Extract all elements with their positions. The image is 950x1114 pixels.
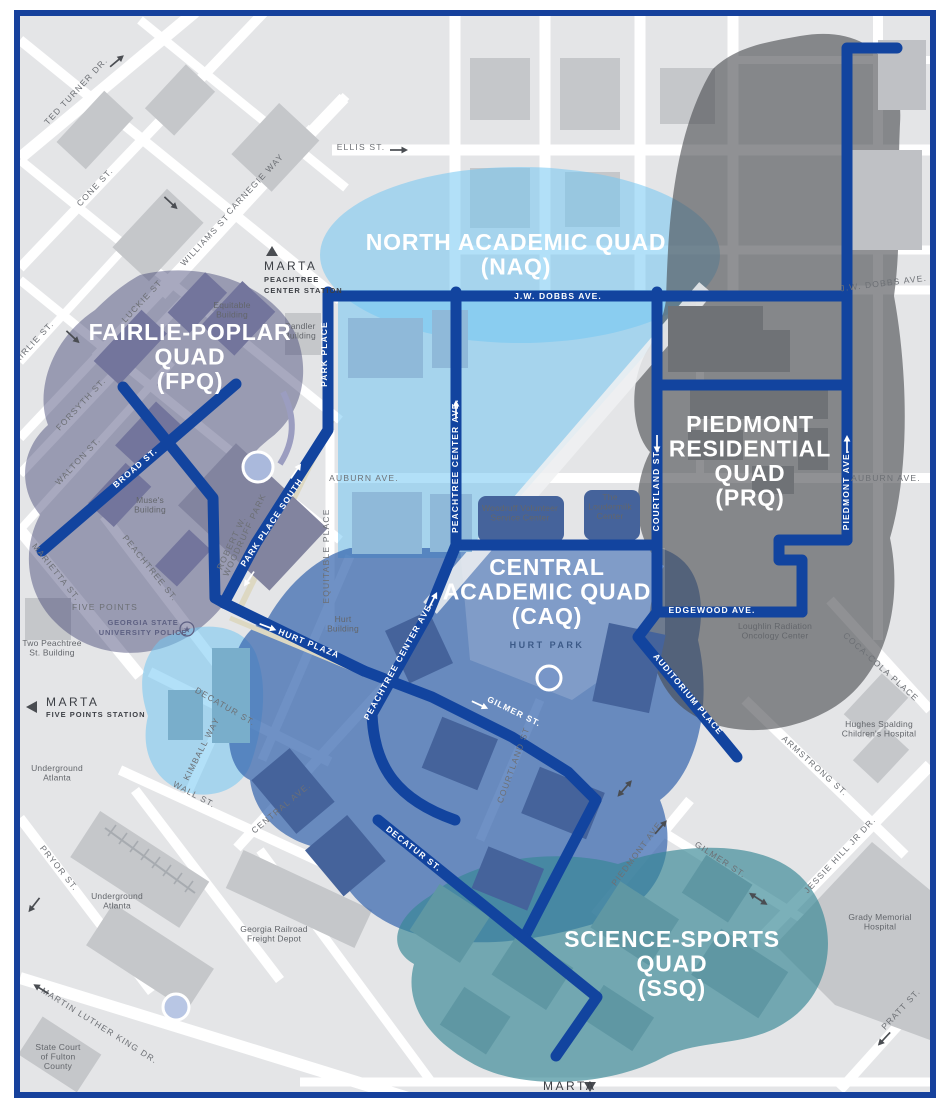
street-label-11: FIVE POINTS xyxy=(72,602,138,612)
place-label-3: Two PeachtreeSt. Building xyxy=(22,638,81,658)
street-label-4: ELLIS ST. xyxy=(337,142,386,152)
route-label-3: COURTLAND ST. xyxy=(651,449,661,532)
place-label-9: Georgia RailroadFreight Depot xyxy=(240,924,308,944)
street-label-20: AUBURN AVE. xyxy=(851,473,921,483)
police-label-0: GEORGIA STATE xyxy=(107,618,178,627)
place-label-12: Hughes SpaldingChildren's Hospital xyxy=(842,719,916,739)
police-label-1: UNIVERSITY POLICE xyxy=(99,628,187,637)
quad-sublabel-caq: HURT PARK xyxy=(510,640,585,650)
marta-station-1-0: FIVE POINTS STATION xyxy=(46,710,146,719)
route-label-4: PIEDMONT AVE. xyxy=(841,450,851,530)
marta-label-2: MARTA xyxy=(543,1079,596,1093)
route-label-0: PARK PLACE xyxy=(319,321,329,387)
street-label-19: EQUITABLE PLACE xyxy=(321,508,331,603)
marta-station-0-0: PEACHTREE xyxy=(264,275,319,284)
place-label-11: Loughlin RadiationOncology Center xyxy=(738,621,812,641)
route-label-1: J.W. DOBBS AVE. xyxy=(514,291,602,301)
route-label-10: EDGEWOOD AVE. xyxy=(668,605,755,615)
place-label-0: EquitableBuilding xyxy=(213,300,250,320)
map-content: TED TURNER DR.CONE ST.CARNEGIE WAYWILLIA… xyxy=(8,8,930,1114)
marta-label-1: MARTA xyxy=(46,695,99,709)
map-canvas: TED TURNER DR.CONE ST.CARNEGIE WAYWILLIA… xyxy=(0,0,950,1114)
street-label-18: AUBURN AVE. xyxy=(329,473,399,483)
marta-label-0: MARTA xyxy=(264,259,317,273)
place-label-7: Woodruff VolunteerService Center xyxy=(482,503,558,523)
campus-map: TED TURNER DR.CONE ST.CARNEGIE WAYWILLIA… xyxy=(0,0,950,1114)
route-label-2: PEACHTREE CENTER AVE. xyxy=(450,399,460,533)
place-label-2: Muse'sBuilding xyxy=(134,495,166,515)
marta-station-0-1: CENTER STATION xyxy=(264,286,343,295)
